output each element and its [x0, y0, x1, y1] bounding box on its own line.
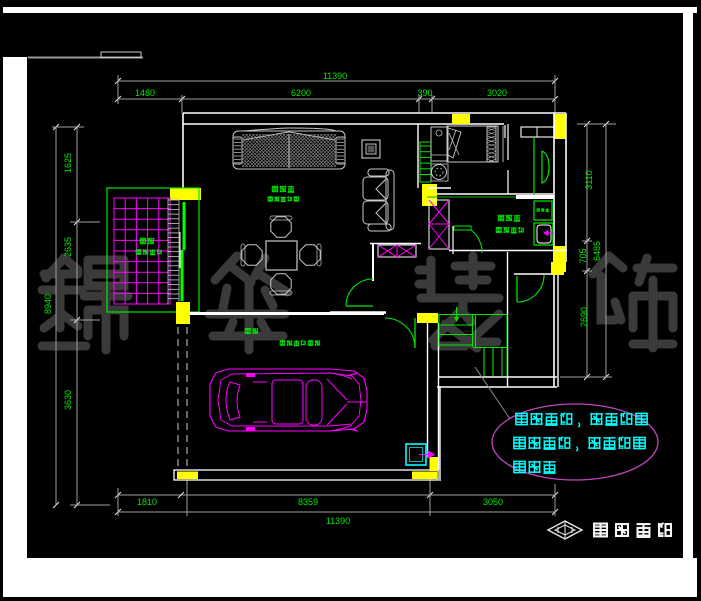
- svg-text:3050: 3050: [483, 497, 503, 507]
- svg-text:3110: 3110: [584, 170, 594, 189]
- svg-text:6485: 6485: [592, 241, 602, 261]
- svg-text:705: 705: [578, 248, 588, 263]
- svg-text:8359: 8359: [298, 497, 318, 507]
- svg-text:11390: 11390: [326, 516, 350, 526]
- svg-text:2635: 2635: [63, 237, 73, 257]
- svg-text:2690: 2690: [579, 307, 589, 327]
- svg-text:390: 390: [417, 88, 432, 98]
- svg-text:8940: 8940: [43, 294, 53, 314]
- svg-text:3630: 3630: [63, 390, 73, 410]
- svg-text:1625: 1625: [63, 153, 73, 173]
- svg-text:11390: 11390: [323, 71, 347, 81]
- svg-text:1810: 1810: [137, 497, 157, 507]
- svg-text:1480: 1480: [135, 88, 155, 98]
- svg-text:3020: 3020: [487, 88, 507, 98]
- svg-text:6200: 6200: [291, 88, 311, 98]
